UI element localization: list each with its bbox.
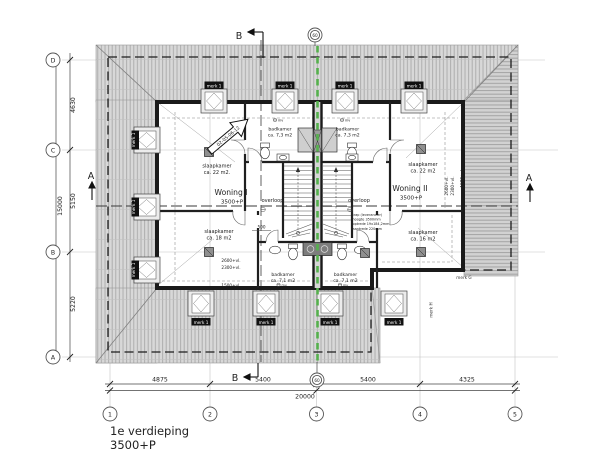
section-b-bottom-label: B: [232, 373, 239, 384]
grid-row-c: C: [51, 147, 55, 154]
grid-row-d: D: [51, 57, 56, 64]
merk-g-label: merk G: [456, 275, 471, 280]
merk-label: merk 1: [338, 83, 353, 88]
floor-plan-drawing: 1 2 3 4 5 D C B A 60 60 4875 5400 5400 4…: [0, 0, 600, 470]
merk-h-label: merk H: [429, 302, 434, 317]
grid-col-1: 1: [108, 411, 112, 418]
level-1500-right: 1500+vl.: [460, 168, 465, 187]
merk-label: merk 1: [259, 320, 274, 325]
room-slaapkamer-sw-area: ca. 18 m2: [207, 236, 232, 242]
grid-col-5: 5: [513, 411, 517, 418]
staircase-right: [323, 166, 351, 237]
room-badkamer-ne: badkamer: [336, 127, 359, 133]
section-a-right-label: A: [526, 173, 533, 184]
merk-label: merk 1: [194, 320, 209, 325]
party-bubble-bottom: 60: [314, 378, 320, 383]
drawing-title-line2: 3500+P: [110, 438, 156, 452]
dormer-window: [317, 291, 343, 316]
room-slaapkamer-se: slaapkamer: [408, 230, 438, 236]
dormer-window: [381, 291, 407, 316]
drawing-title-line1: 1e verdieping: [110, 424, 189, 438]
mv-label-se: mv: [343, 283, 348, 287]
room-slaapkamer-se-area: ca. 16 m2: [411, 237, 436, 243]
stair-note-1: trap (leverancier): [353, 213, 383, 217]
room-overloop-left: overloop: [262, 198, 284, 204]
stair-note-4: aantrede 220mm: [353, 227, 383, 231]
grid-col-3: 3: [315, 411, 319, 418]
room-badkamer-ne-area: ca. 7,3 m2: [335, 133, 360, 139]
dim-15000: 15000: [57, 196, 64, 216]
grid-row-b: B: [51, 249, 55, 256]
woning2-level: 3500+P: [400, 196, 423, 202]
merk-label: merk 1: [131, 132, 136, 147]
floor-plan-page: 1 2 3 4 5 D C B A 60 60 4875 5400 5400 4…: [0, 0, 600, 470]
merk-label: merk 1: [323, 320, 338, 325]
room-badkamer-se: badkamer: [334, 272, 357, 278]
stair-note-3: optrede 19x184,2mm: [353, 222, 391, 226]
room-badkamer-nw-area: ca. 7,3 m2: [268, 133, 293, 139]
level-2300-right: 2300+vl.: [450, 176, 455, 195]
dim-4325: 4325: [459, 377, 475, 384]
dormer-window: [272, 89, 298, 113]
dim-5220: 5220: [70, 296, 77, 312]
merk-label: merk 1: [407, 83, 422, 88]
dormer-window: [188, 291, 214, 316]
room-badkamer-sw: badkamer: [271, 272, 294, 278]
level-2600-right: 2600+vl.: [444, 176, 449, 195]
dim-5400-2: 5400: [360, 377, 376, 384]
dim-5400-1: 5400: [255, 377, 271, 384]
dim-20000: 20000: [295, 394, 315, 401]
room-slaapkamer-nw-area: ca. 22 m2.: [204, 170, 231, 176]
mv-label-ne: mv: [345, 119, 350, 123]
woning1-name: Woning I: [215, 188, 248, 197]
dim-4875: 4875: [152, 377, 168, 384]
room-slaapkamer-ne: slaapkamer: [408, 162, 438, 168]
roof-north: [96, 45, 518, 102]
staircase-left: [284, 166, 312, 237]
merk-label: merk 1: [207, 83, 222, 88]
merk-label: merk 1: [278, 83, 293, 88]
dormer-window: [201, 89, 227, 113]
section-a-left-label: A: [88, 171, 95, 182]
merk-label: merk 1: [131, 199, 136, 214]
stair-note-2: hoogte 3500mm: [353, 218, 382, 222]
room-badkamer-nw: badkamer: [268, 127, 291, 133]
room-slaapkamer-ne-area: ca. 22 m2: [411, 169, 436, 175]
dim-5150: 5150: [70, 193, 77, 209]
mv-label-nw: mv: [278, 119, 283, 123]
level-2300-left: 2300+vl.: [221, 265, 240, 270]
merk-label: merk 1: [387, 320, 402, 325]
dormer-window: [401, 89, 427, 113]
detail-ref-label: 02-05-06-12: [216, 125, 242, 148]
merk-label: merk 1: [131, 262, 136, 277]
level-2600-left: 2600+vl.: [221, 258, 240, 263]
dormer-window: [253, 291, 279, 316]
woning2-name: Woning II: [392, 184, 427, 193]
dim-4630: 4630: [70, 97, 77, 113]
mv-label-sw: mv: [282, 283, 287, 287]
woning1-level: 3500+P: [221, 200, 244, 206]
dormer-window: [332, 89, 358, 113]
room-slaapkamer-sw: slaapkamer: [204, 229, 234, 235]
roof-east: [464, 100, 518, 276]
grid-col-2: 2: [208, 411, 212, 418]
room-slaapkamer-nw: slaapkamer: [202, 164, 232, 170]
section-b-top-label: B: [236, 31, 243, 42]
party-bubble-top: 60: [312, 33, 318, 38]
room-overloop-right: overloop: [348, 198, 370, 204]
level-1500-left: 1500+vl.: [221, 283, 240, 288]
dim-500: 500: [258, 225, 266, 230]
grid-col-4: 4: [418, 411, 422, 418]
